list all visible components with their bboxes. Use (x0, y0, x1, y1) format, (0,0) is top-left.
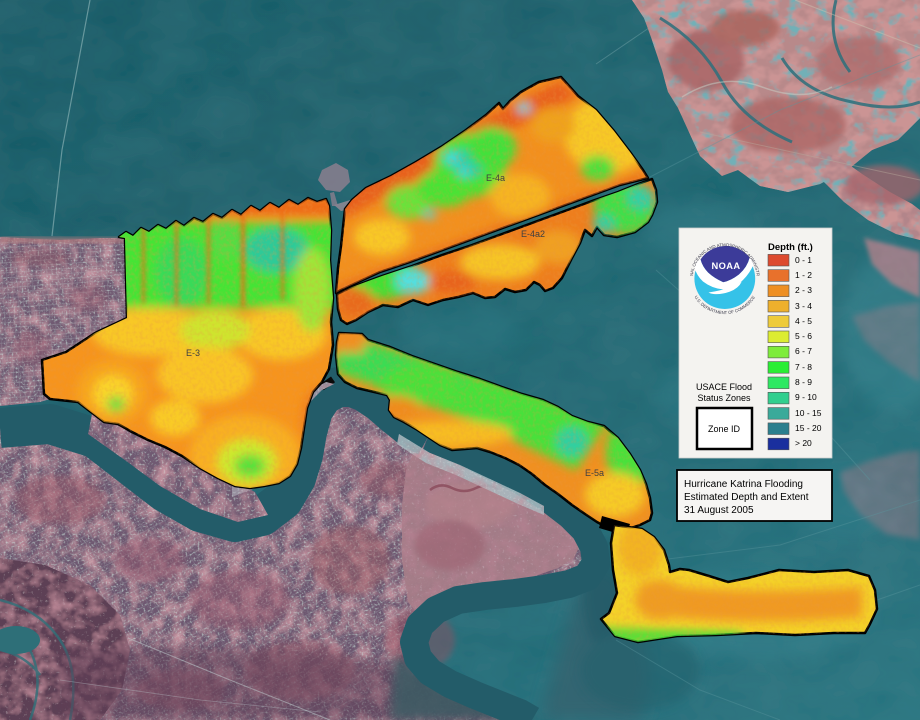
svg-text:4 - 5: 4 - 5 (795, 316, 812, 326)
svg-text:15 - 20: 15 - 20 (795, 423, 822, 433)
svg-text:> 20: > 20 (795, 438, 812, 448)
svg-text:Depth (ft.): Depth (ft.) (768, 242, 813, 253)
svg-text:31 August 2005: 31 August 2005 (684, 505, 754, 516)
svg-text:5 - 6: 5 - 6 (795, 331, 812, 341)
svg-text:E-4a2: E-4a2 (521, 229, 545, 239)
svg-text:0 - 1: 0 - 1 (795, 255, 812, 265)
svg-text:9 - 10: 9 - 10 (795, 392, 817, 402)
svg-text:USACE Flood: USACE Flood (696, 382, 752, 392)
svg-text:E-5a: E-5a (585, 468, 604, 478)
svg-text:Status Zones: Status Zones (697, 393, 751, 403)
svg-text:Zone ID: Zone ID (708, 424, 741, 434)
svg-text:8 - 9: 8 - 9 (795, 377, 812, 387)
svg-text:2 - 3: 2 - 3 (795, 285, 812, 295)
svg-text:3 - 4: 3 - 4 (795, 301, 812, 311)
svg-text:E-3: E-3 (186, 348, 200, 358)
svg-text:E-4a: E-4a (486, 173, 505, 183)
svg-text:7 - 8: 7 - 8 (795, 362, 812, 372)
svg-text:Estimated Depth and Extent: Estimated Depth and Extent (684, 492, 809, 503)
svg-text:NOAA: NOAA (712, 261, 741, 271)
svg-text:10 - 15: 10 - 15 (795, 408, 822, 418)
svg-text:6 - 7: 6 - 7 (795, 346, 812, 356)
svg-text:Hurricane Katrina Flooding: Hurricane Katrina Flooding (684, 479, 803, 490)
svg-text:1 - 2: 1 - 2 (795, 270, 812, 280)
